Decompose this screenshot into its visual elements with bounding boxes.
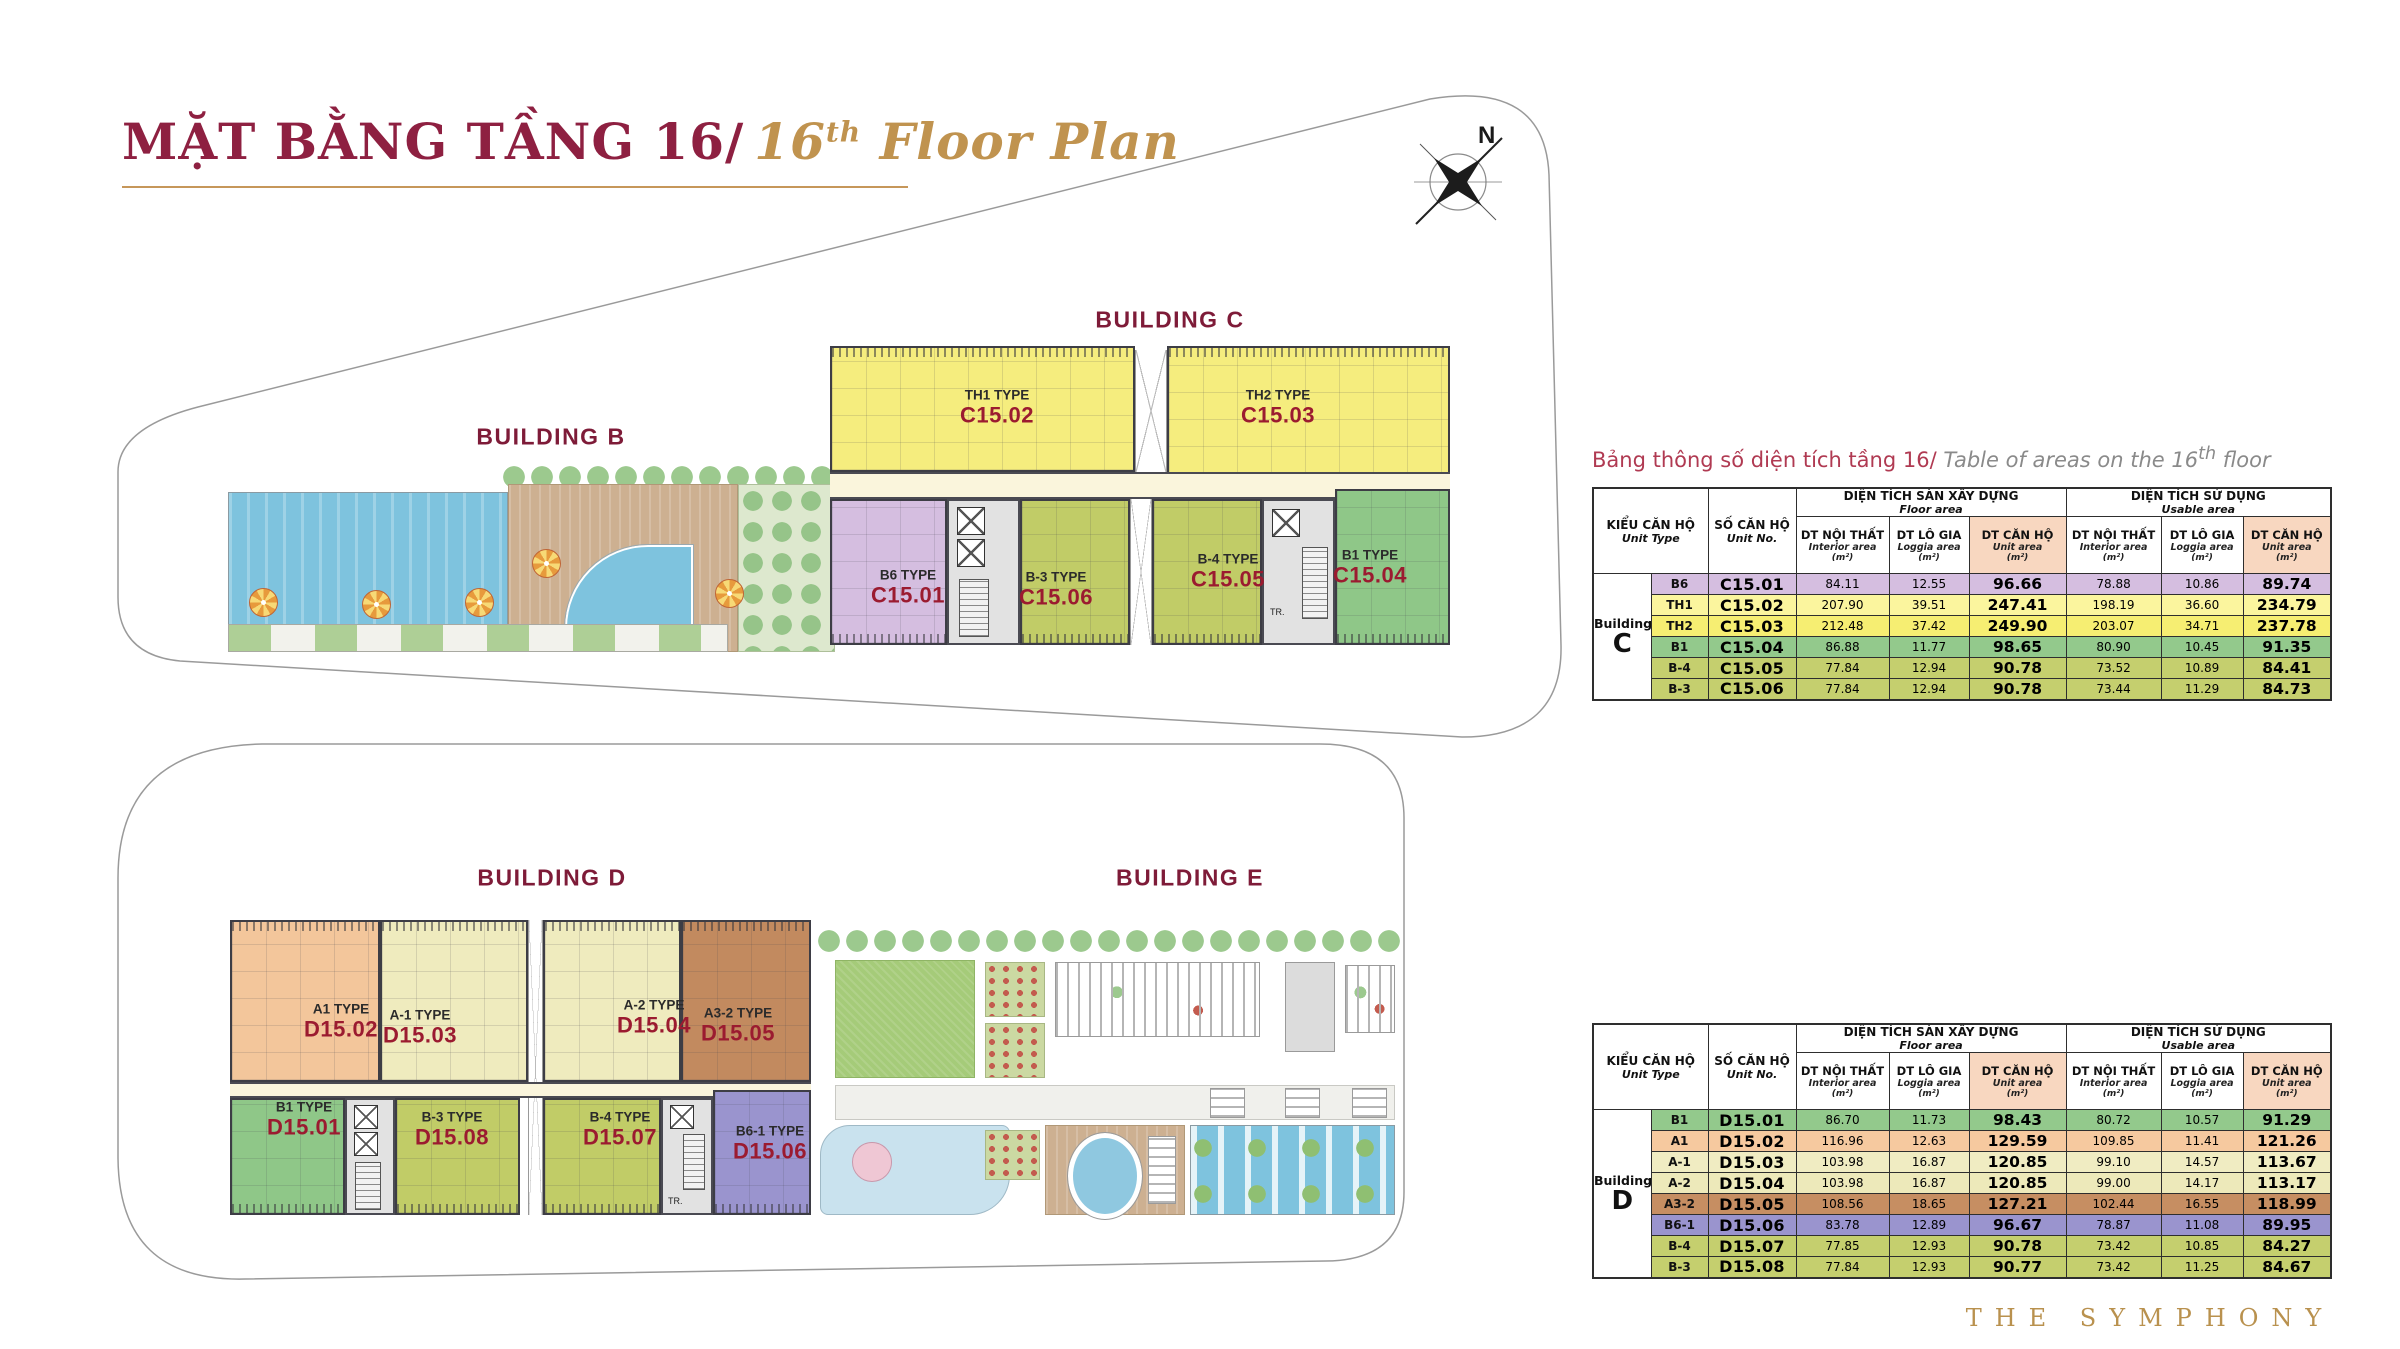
subheader-vi: DT NỘI THẤT: [1797, 1064, 1889, 1078]
subheader-vi: DT LÔ GIA: [1890, 1064, 1969, 1078]
connector-bridge: [1130, 499, 1152, 645]
unit-area-cell: 120.85: [1969, 1152, 2066, 1173]
unit-area-cell: 84.27: [2243, 1236, 2331, 1257]
unit-area-cell: 90.78: [1969, 1236, 2066, 1257]
area-value-cell: 11.08: [2161, 1215, 2243, 1236]
area-value-cell: 14.57: [2161, 1152, 2243, 1173]
unit-area-cell: 84.67: [2243, 1257, 2331, 1278]
header-en: Usable area: [2067, 1039, 2331, 1052]
subheader-en: Interior area: [1797, 542, 1889, 553]
header-en: Floor area: [1797, 503, 2066, 516]
area-value-cell: 102.44: [2066, 1194, 2161, 1215]
subheader-vi: DT CĂN HỘ: [1970, 528, 2066, 542]
unit-area-cell: 121.26: [2243, 1131, 2331, 1152]
unit-type-cell: A3-2: [1651, 1194, 1708, 1215]
subheader-unit: (m²): [2067, 553, 2161, 563]
stairs-icon: [1302, 547, 1328, 619]
header-vi: SỐ CĂN HỘ: [1709, 1054, 1796, 1068]
area-value-cell: 77.84: [1796, 658, 1889, 679]
area-value-cell: 12.93: [1889, 1257, 1969, 1278]
area-value-cell: 198.19: [2066, 595, 2161, 616]
building-letter: D: [1594, 1188, 1651, 1214]
unit-type-cell: B-4: [1651, 1236, 1708, 1257]
unit-no-cell: C15.02: [1708, 595, 1796, 616]
area-value-cell: 99.00: [2066, 1173, 2161, 1194]
unit-label-d15-08: B-3 TYPE D15.08: [415, 1110, 489, 1149]
unit-label-d15-07: B-4 TYPE D15.07: [583, 1110, 657, 1149]
unit-no-cell: D15.07: [1708, 1236, 1796, 1257]
areas-table: KIỂU CĂN HỘUnit TypeSỐ CĂN HỘUnit No.DIỆ…: [1592, 487, 2332, 701]
header-en: Unit Type: [1594, 1068, 1708, 1081]
unit-area-cell: 90.78: [1969, 679, 2066, 700]
page-title: MẶT BẰNG TẦNG 16/16th Floor Plan: [122, 112, 1180, 171]
project-brand: THE SYMPHONY: [1960, 1304, 2340, 1332]
unit-area-cell: 249.90: [1969, 616, 2066, 637]
area-value-cell: 16.55: [2161, 1194, 2243, 1215]
area-value-cell: 77.84: [1796, 1257, 1889, 1278]
building-d-label: BUILDING D: [477, 865, 626, 892]
area-value-cell: 10.86: [2161, 574, 2243, 595]
unit-no-cell: C15.04: [1708, 637, 1796, 658]
subheader-vi: DT NỘI THẤT: [1797, 528, 1889, 542]
unit-block-d15-03: [380, 920, 528, 1082]
area-value-cell: 12.89: [1889, 1215, 1969, 1236]
subheader-en: Loggia area: [1890, 542, 1969, 553]
table-row: B1C15.0486.8811.7798.6580.9010.4591.35: [1593, 637, 2331, 658]
unit-area-cell: 96.67: [1969, 1215, 2066, 1236]
area-value-cell: 78.88: [2066, 574, 2161, 595]
building-cell: BuildingC: [1593, 574, 1651, 700]
unit-no-cell: C15.03: [1708, 616, 1796, 637]
title-underline: [122, 186, 908, 188]
sub-header: DT CĂN HỘUnit area(m²): [1969, 517, 2066, 574]
unit-type-cell: A1: [1651, 1131, 1708, 1152]
lift-stair-core: [947, 499, 1020, 645]
unit-no-cell: C15.05: [1708, 658, 1796, 679]
unit-label-d15-05: A3-2 TYPE D15.05: [701, 1006, 775, 1045]
unit-area-cell: 127.21: [1969, 1194, 2066, 1215]
lap-pool: [1190, 1125, 1395, 1215]
garden-panel: [1285, 962, 1335, 1052]
umbrella-icon: [715, 579, 744, 608]
table-row: A-2D15.04103.9816.87120.8599.0014.17113.…: [1593, 1173, 2331, 1194]
unit-type-header: KIỂU CĂN HỘUnit Type: [1593, 488, 1708, 574]
subheader-unit: (m²): [2067, 1089, 2161, 1099]
subheader-en: Interior area: [2067, 1078, 2161, 1089]
table-row: A-1D15.03103.9816.87120.8599.1014.57113.…: [1593, 1152, 2331, 1173]
table-row: B-3C15.0677.8412.9490.7873.4411.2984.73: [1593, 679, 2331, 700]
elevator-icon: [1272, 509, 1300, 537]
area-value-cell: 11.73: [1889, 1110, 1969, 1131]
area-value-cell: 103.98: [1796, 1173, 1889, 1194]
lift-stair-core: TR.: [1262, 499, 1335, 645]
bench-slats: [1210, 1088, 1245, 1118]
area-value-cell: 109.85: [2066, 1131, 2161, 1152]
unit-no-cell: D15.05: [1708, 1194, 1796, 1215]
unit-area-cell: 91.35: [2243, 637, 2331, 658]
building-b-label: BUILDING B: [476, 424, 625, 451]
unit-area-cell: 90.78: [1969, 658, 2066, 679]
elevator-icon: [354, 1105, 378, 1129]
unit-area-cell: 237.78: [2243, 616, 2331, 637]
area-value-cell: 212.48: [1796, 616, 1889, 637]
subheader-unit: (m²): [1797, 1089, 1889, 1099]
pergola-trellis: [1055, 962, 1260, 1037]
elevator-icon: [354, 1132, 378, 1156]
elevator-icon: [957, 507, 985, 535]
bench-slats: [1285, 1088, 1320, 1118]
area-value-cell: 77.85: [1796, 1236, 1889, 1257]
garden-strip: [738, 484, 835, 652]
flower-bed: [985, 962, 1045, 1017]
area-value-cell: 12.94: [1889, 679, 1969, 700]
unit-type-cell: TH2: [1651, 616, 1708, 637]
unit-no-header: SỐ CĂN HỘUnit No.: [1708, 488, 1796, 574]
table-body: BuildingDB1D15.0186.7011.7398.4380.7210.…: [1593, 1110, 2331, 1278]
unit-area-cell: 113.67: [2243, 1152, 2331, 1173]
area-value-cell: 14.17: [2161, 1173, 2243, 1194]
compass-north-label: N: [1478, 122, 1495, 150]
sub-header: DT LÔ GIALoggia area(m²): [1889, 1053, 1969, 1110]
table-row: TH2C15.03212.4837.42249.90203.0734.71237…: [1593, 616, 2331, 637]
subheader-en: Loggia area: [1890, 1078, 1969, 1089]
areas-table: KIỂU CĂN HỘUnit TypeSỐ CĂN HỘUnit No.DIỆ…: [1592, 1023, 2332, 1279]
oval-pool: [1068, 1133, 1142, 1219]
subheader-unit: (m²): [1890, 553, 1969, 563]
unit-no-cell: D15.01: [1708, 1110, 1796, 1131]
subheader-en: Loggia area: [2162, 542, 2243, 553]
table-header: KIỂU CĂN HỘUnit TypeSỐ CĂN HỘUnit No.DIỆ…: [1593, 1024, 2331, 1110]
header-en: Unit No.: [1709, 1068, 1796, 1081]
elevator-icon: [670, 1105, 694, 1129]
area-value-cell: 12.93: [1889, 1236, 1969, 1257]
area-value-cell: 73.44: [2066, 679, 2161, 700]
area-value-cell: 80.90: [2066, 637, 2161, 658]
unit-type-cell: TH1: [1651, 595, 1708, 616]
sub-header: DT NỘI THẤTInterior area(m²): [2066, 1053, 2161, 1110]
unit-type-cell: B-3: [1651, 1257, 1708, 1278]
unit-label-d15-02: A1 TYPE D15.02: [304, 1002, 378, 1041]
table-row: B6-1D15.0683.7812.8996.6778.8711.0889.95: [1593, 1215, 2331, 1236]
unit-no-cell: C15.06: [1708, 679, 1796, 700]
subheader-vi: DT CĂN HỘ: [2244, 1064, 2331, 1078]
stairs-icon: [683, 1134, 705, 1190]
area-value-cell: 34.71: [2161, 616, 2243, 637]
subheader-unit: (m²): [2162, 1089, 2243, 1099]
unit-no-cell: D15.08: [1708, 1257, 1796, 1278]
page-title-vi: MẶT BẰNG TẦNG 16/: [122, 112, 744, 171]
unit-type-cell: B-3: [1651, 679, 1708, 700]
subheader-unit: (m²): [1797, 553, 1889, 563]
area-value-cell: 37.42: [1889, 616, 1969, 637]
sub-header: DT NỘI THẤTInterior area(m²): [1796, 1053, 1889, 1110]
connector-bridge: [1135, 350, 1167, 472]
usable-area-group-header: DIỆN TÍCH SỬ DỤNGUsable area: [2066, 1024, 2331, 1053]
header-vi: DIỆN TÍCH SÀN XÂY DỰNG: [1797, 489, 2066, 503]
subheader-unit: (m²): [2162, 553, 2243, 563]
unit-no-cell: D15.06: [1708, 1215, 1796, 1236]
subheader-vi: DT CĂN HỘ: [1970, 1064, 2066, 1078]
core-label: TR.: [1270, 607, 1285, 617]
area-value-cell: 108.56: [1796, 1194, 1889, 1215]
unit-type-cell: B6: [1651, 574, 1708, 595]
table-row: BuildingCB6C15.0184.1112.5596.6678.8810.…: [1593, 574, 2331, 595]
umbrella-icon: [362, 590, 391, 619]
area-value-cell: 73.42: [2066, 1236, 2161, 1257]
area-value-cell: 203.07: [2066, 616, 2161, 637]
page-title-en: 16th Floor Plan: [754, 112, 1180, 171]
elevator-icon: [957, 539, 985, 567]
area-value-cell: 11.41: [2161, 1131, 2243, 1152]
area-value-cell: 10.57: [2161, 1110, 2243, 1131]
sub-header: DT LÔ GIALoggia area(m²): [2161, 517, 2243, 574]
table-row: BuildingDB1D15.0186.7011.7398.4380.7210.…: [1593, 1110, 2331, 1131]
stairs-icon: [959, 579, 989, 637]
unit-type-cell: B6-1: [1651, 1215, 1708, 1236]
subheader-en: Unit area: [2244, 1078, 2331, 1089]
subheader-vi: DT LÔ GIA: [2162, 1064, 2243, 1078]
umbrella-icon: [532, 549, 561, 578]
area-value-cell: 12.94: [1889, 658, 1969, 679]
unit-area-cell: 247.41: [1969, 595, 2066, 616]
area-value-cell: 36.60: [2161, 595, 2243, 616]
umbrella-icon: [465, 588, 494, 617]
unit-area-cell: 113.17: [2243, 1173, 2331, 1194]
usable-area-group-header: DIỆN TÍCH SỬ DỤNGUsable area: [2066, 488, 2331, 517]
subheader-vi: DT LÔ GIA: [1890, 528, 1969, 542]
core-label: TR.: [668, 1196, 683, 1206]
header-vi: KIỂU CĂN HỘ: [1594, 1054, 1708, 1068]
unit-type-cell: B-4: [1651, 658, 1708, 679]
unit-label-d15-01: B1 TYPE D15.01: [267, 1100, 341, 1139]
area-value-cell: 73.52: [2066, 658, 2161, 679]
header-vi: KIỂU CĂN HỘ: [1594, 518, 1708, 532]
unit-no-header: SỐ CĂN HỘUnit No.: [1708, 1024, 1796, 1110]
header-vi: DIỆN TÍCH SỬ DỤNG: [2067, 489, 2331, 503]
area-value-cell: 10.45: [2161, 637, 2243, 658]
subheader-unit: (m²): [1970, 1089, 2066, 1099]
bench-slats: [1352, 1088, 1387, 1118]
subheader-en: Unit area: [1970, 542, 2066, 553]
header-en: Unit No.: [1709, 532, 1796, 545]
area-value-cell: 12.55: [1889, 574, 1969, 595]
unit-area-cell: 118.99: [2243, 1194, 2331, 1215]
areas-table-building-c: KIỂU CĂN HỘUnit TypeSỐ CĂN HỘUnit No.DIỆ…: [1592, 487, 2332, 701]
unit-area-cell: 89.95: [2243, 1215, 2331, 1236]
area-value-cell: 86.88: [1796, 637, 1889, 658]
spa-float-icon: [852, 1142, 892, 1182]
table-row: A1D15.02116.9612.63129.59109.8511.41121.…: [1593, 1131, 2331, 1152]
header-en: Unit Type: [1594, 532, 1708, 545]
area-value-cell: 99.10: [2066, 1152, 2161, 1173]
unit-label-d15-04: A-2 TYPE D15.04: [617, 998, 691, 1037]
area-value-cell: 73.42: [2066, 1257, 2161, 1278]
unit-area-cell: 98.65: [1969, 637, 2066, 658]
area-value-cell: 12.63: [1889, 1131, 1969, 1152]
subheader-vi: DT CĂN HỘ: [2244, 528, 2331, 542]
unit-label-c15-06: B-3 TYPE C15.06: [1019, 570, 1093, 609]
unit-area-cell: 96.66: [1969, 574, 2066, 595]
table-row: TH1C15.02207.9039.51247.41198.1936.60234…: [1593, 595, 2331, 616]
unit-type-cell: A-2: [1651, 1173, 1708, 1194]
header-vi: DIỆN TÍCH SÀN XÂY DỰNG: [1797, 1025, 2066, 1039]
area-value-cell: 80.72: [2066, 1110, 2161, 1131]
unit-type-cell: B1: [1651, 1110, 1708, 1131]
subheader-en: Interior area: [1797, 1078, 1889, 1089]
floor-area-group-header: DIỆN TÍCH SÀN XÂY DỰNGFloor area: [1796, 488, 2066, 517]
area-value-cell: 11.77: [1889, 637, 1969, 658]
tree-row: [815, 926, 1400, 956]
area-value-cell: 77.84: [1796, 679, 1889, 700]
area-value-cell: 78.87: [2066, 1215, 2161, 1236]
unit-type-cell: B1: [1651, 637, 1708, 658]
unit-label-c15-01: B6 TYPE C15.01: [871, 568, 945, 607]
umbrella-icon: [249, 588, 278, 617]
lawn: [835, 960, 975, 1078]
subheader-en: Unit area: [2244, 542, 2331, 553]
area-value-cell: 207.90: [1796, 595, 1889, 616]
area-value-cell: 86.70: [1796, 1110, 1889, 1131]
area-value-cell: 103.98: [1796, 1152, 1889, 1173]
header-en: Usable area: [2067, 503, 2331, 516]
pergola-trellis: [1345, 965, 1395, 1033]
unit-area-cell: 234.79: [2243, 595, 2331, 616]
kids-pool-area: [820, 1125, 1010, 1215]
building-e-label: BUILDING E: [1116, 865, 1264, 892]
sub-header: DT LÔ GIALoggia area(m²): [2161, 1053, 2243, 1110]
subheader-vi: DT NỘI THẤT: [2067, 528, 2161, 542]
unit-label-c15-05: B-4 TYPE C15.05: [1191, 552, 1265, 591]
subheader-unit: (m²): [2244, 1089, 2331, 1099]
building-c-label: BUILDING C: [1095, 307, 1244, 334]
unit-label-c15-04: B1 TYPE C15.04: [1333, 548, 1407, 587]
area-value-cell: 16.87: [1889, 1173, 1969, 1194]
unit-area-cell: 90.77: [1969, 1257, 2066, 1278]
table-body: BuildingCB6C15.0184.1112.5596.6678.8810.…: [1593, 574, 2331, 700]
area-value-cell: 116.96: [1796, 1131, 1889, 1152]
unit-no-cell: C15.01: [1708, 574, 1796, 595]
unit-label-c15-03: TH2 TYPE C15.03: [1241, 388, 1315, 427]
page: N MẶT BẰNG TẦNG 16/16th Floor Plan BUILD…: [0, 0, 2400, 1349]
area-value-cell: 11.29: [2161, 679, 2243, 700]
table-row: B-4D15.0777.8512.9390.7873.4210.8584.27: [1593, 1236, 2331, 1257]
unit-label-d15-06: B6-1 TYPE D15.06: [733, 1124, 807, 1163]
unit-no-cell: D15.03: [1708, 1152, 1796, 1173]
sub-header: DT CĂN HỘUnit area(m²): [2243, 1053, 2331, 1110]
header-row: KIỂU CĂN HỘUnit TypeSỐ CĂN HỘUnit No.DIỆ…: [1593, 1024, 2331, 1053]
table-header: KIỂU CĂN HỘUnit TypeSỐ CĂN HỘUnit No.DIỆ…: [1593, 488, 2331, 574]
subheader-en: Unit area: [1970, 1078, 2066, 1089]
table-row: B-4C15.0577.8412.9490.7873.5210.8984.41: [1593, 658, 2331, 679]
pool-steps: [1148, 1136, 1176, 1204]
unit-type-cell: A-1: [1651, 1152, 1708, 1173]
table-row: B-3D15.0877.8412.9390.7773.4211.2584.67: [1593, 1257, 2331, 1278]
sub-header: DT NỘI THẤTInterior area(m²): [1796, 517, 1889, 574]
area-value-cell: 10.89: [2161, 658, 2243, 679]
unit-area-cell: 89.74: [2243, 574, 2331, 595]
header-vi: SỐ CĂN HỘ: [1709, 518, 1796, 532]
planter-band: [228, 624, 728, 652]
area-value-cell: 18.65: [1889, 1194, 1969, 1215]
lift-stair-core: TR.: [661, 1098, 713, 1215]
stairs-icon: [355, 1162, 381, 1210]
unit-block-d15-05: [681, 920, 811, 1082]
unit-area-cell: 91.29: [2243, 1110, 2331, 1131]
building-letter: C: [1594, 631, 1651, 657]
sub-header: DT CĂN HỘUnit area(m²): [1969, 1053, 2066, 1110]
subheader-unit: (m²): [2244, 553, 2331, 563]
subheader-unit: (m²): [1890, 1089, 1969, 1099]
floor-area-group-header: DIỆN TÍCH SÀN XÂY DỰNGFloor area: [1796, 1024, 2066, 1053]
subheader-vi: DT LÔ GIA: [2162, 528, 2243, 542]
unit-label-d15-03: A-1 TYPE D15.03: [383, 1008, 457, 1047]
header-row: KIỂU CĂN HỘUnit TypeSỐ CĂN HỘUnit No.DIỆ…: [1593, 488, 2331, 517]
unit-no-cell: D15.04: [1708, 1173, 1796, 1194]
lift-stair-core: [345, 1098, 395, 1215]
unit-type-header: KIỂU CĂN HỘUnit Type: [1593, 1024, 1708, 1110]
flower-bed: [985, 1130, 1040, 1180]
subheader-en: Loggia area: [2162, 1078, 2243, 1089]
area-value-cell: 16.87: [1889, 1152, 1969, 1173]
table-row: A3-2D15.05108.5618.65127.21102.4416.5511…: [1593, 1194, 2331, 1215]
unit-no-cell: D15.02: [1708, 1131, 1796, 1152]
subheader-en: Interior area: [2067, 542, 2161, 553]
header-vi: DIỆN TÍCH SỬ DỤNG: [2067, 1025, 2331, 1039]
header-en: Floor area: [1797, 1039, 2066, 1052]
unit-area-cell: 84.73: [2243, 679, 2331, 700]
area-value-cell: 84.11: [1796, 574, 1889, 595]
area-value-cell: 11.25: [2161, 1257, 2243, 1278]
subheader-vi: DT NỘI THẤT: [2067, 1064, 2161, 1078]
building-cell: BuildingD: [1593, 1110, 1651, 1278]
sub-header: DT LÔ GIALoggia area(m²): [1889, 517, 1969, 574]
unit-area-cell: 129.59: [1969, 1131, 2066, 1152]
area-value-cell: 10.85: [2161, 1236, 2243, 1257]
unit-label-c15-02: TH1 TYPE C15.02: [960, 388, 1034, 427]
unit-area-cell: 84.41: [2243, 658, 2331, 679]
unit-area-cell: 98.43: [1969, 1110, 2066, 1131]
unit-area-cell: 120.85: [1969, 1173, 2066, 1194]
area-value-cell: 83.78: [1796, 1215, 1889, 1236]
sub-header: DT NỘI THẤTInterior area(m²): [2066, 517, 2161, 574]
connector-bridge: [528, 920, 543, 1215]
flower-bed: [985, 1023, 1045, 1078]
table-c-title: Bảng thông số diện tích tầng 16/ Table o…: [1592, 444, 2271, 472]
sub-header: DT CĂN HỘUnit area(m²): [2243, 517, 2331, 574]
area-value-cell: 39.51: [1889, 595, 1969, 616]
subheader-unit: (m²): [1970, 553, 2066, 563]
areas-table-building-d: KIỂU CĂN HỘUnit TypeSỐ CĂN HỘUnit No.DIỆ…: [1592, 1023, 2332, 1279]
